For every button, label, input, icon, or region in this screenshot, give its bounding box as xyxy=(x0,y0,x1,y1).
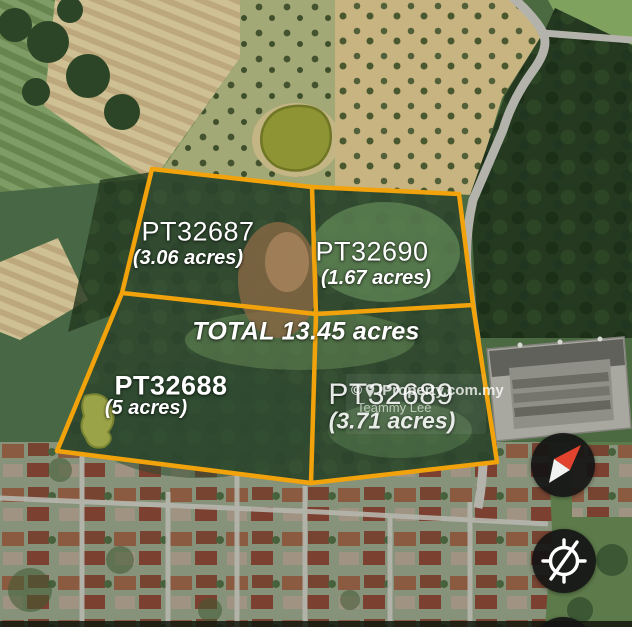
location-disabled-button[interactable] xyxy=(532,529,596,593)
map-viewport[interactable]: PT32687 (3.06 acres) PT32690 (1.67 acres… xyxy=(0,0,632,627)
bottom-edge-shadow xyxy=(0,621,632,627)
industrial-building xyxy=(487,337,631,442)
parcel-area-pt32690: (1.67 acres) xyxy=(321,268,431,288)
parcel-label-pt32690: PT32690 xyxy=(315,239,428,266)
watermark: © iProperty.com.my xyxy=(351,382,504,399)
parcel-area-pt32688: (5 acres) xyxy=(105,398,187,418)
pond xyxy=(261,106,331,171)
compass-icon xyxy=(531,433,595,497)
agent-name: Teammy Lee xyxy=(357,401,431,414)
total-area-label: TOTAL 13.45 acres xyxy=(192,320,419,345)
copyright-symbol: © xyxy=(351,382,362,399)
compass-button[interactable] xyxy=(531,433,595,497)
parcel-area-pt32687: (3.06 acres) xyxy=(133,248,243,268)
watermark-brand: iProperty.com.my xyxy=(378,382,504,399)
parcel-label-pt32688: PT32688 xyxy=(114,373,227,400)
location-disabled-icon xyxy=(532,529,596,593)
parcel-label-pt32687: PT32687 xyxy=(141,219,254,246)
map-pin-icon xyxy=(365,384,375,398)
